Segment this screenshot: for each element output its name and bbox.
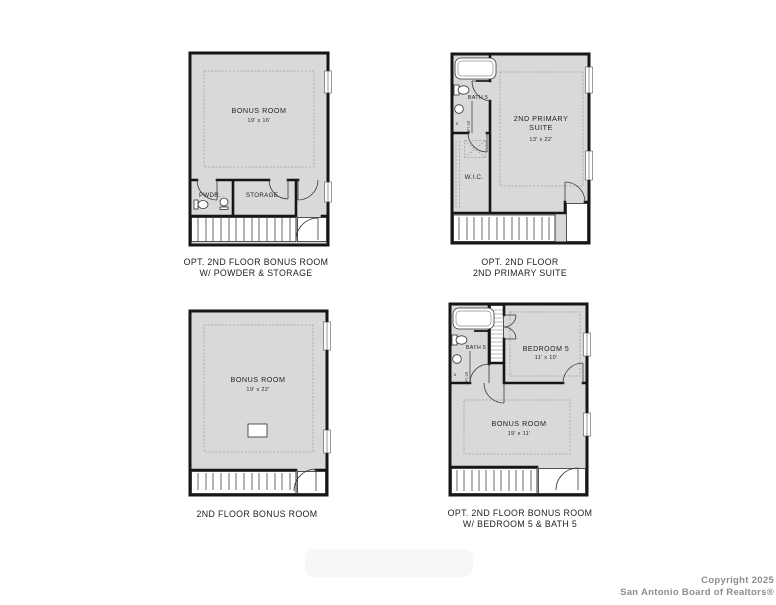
bonus-room-dims: 19' x 11' <box>508 431 531 437</box>
floor-outline <box>190 311 327 495</box>
bath-label: BATH 5 <box>466 345 486 351</box>
bonus-room-label: BONUS ROOM <box>231 375 286 384</box>
toilet-tank-icon <box>194 200 198 209</box>
sink-icon <box>453 355 462 364</box>
entry-landing <box>298 218 327 242</box>
floorplan-sheet: BONUS ROOM 19' x 16' PWDR. STORAGE OPT. … <box>0 0 776 600</box>
wic-label: W.I.C. <box>465 174 484 181</box>
suite-label-line2: SUITE <box>529 123 553 132</box>
sink-icon <box>220 198 228 206</box>
toilet-icon <box>458 86 469 94</box>
plan-caption-line1: OPT. 2ND FLOOR <box>481 257 558 267</box>
bonus-room-dims: 19' x 16' <box>247 118 270 124</box>
opt-door-label: OPT. DR <box>465 371 469 384</box>
plan-caption-line1: 2ND FLOOR BONUS ROOM <box>197 509 318 519</box>
copyright-line2: San Antonio Board of Realtors® <box>620 587 774 599</box>
sink-pedestal-icon <box>220 207 228 210</box>
powder-label: PWDR. <box>199 192 221 199</box>
plan-caption-line1: OPT. 2ND FLOOR BONUS ROOM <box>448 508 593 518</box>
plan-caption-line1: OPT. 2ND FLOOR BONUS ROOM <box>184 257 329 267</box>
storage-label: STORAGE <box>246 192 278 199</box>
copyright-watermark: Copyright 2025 San Antonio Board of Real… <box>620 575 776 598</box>
plan-opt-2nd-primary-suite: 2ND PRIMARY SUITE 13' x 22' BATH 5 W.I.C… <box>452 54 593 278</box>
bath-label: BATH 5 <box>468 95 488 101</box>
plan-caption-line2: W/ BEDROOM 5 & BATH 5 <box>463 519 577 529</box>
copyright-line1: Copyright 2025 <box>620 575 774 587</box>
bonus-room-dims: 19' x 22' <box>246 387 269 393</box>
plan-opt-bonus-powder-storage: BONUS ROOM 19' x 16' PWDR. STORAGE OPT. … <box>184 53 332 278</box>
suite-dims: 13' x 22' <box>529 137 552 143</box>
opt-door-label: OPT. DR <box>467 120 471 133</box>
toilet-icon <box>456 336 467 344</box>
attic-access <box>248 424 267 437</box>
bedroom-dims: 11' x 10' <box>535 355 558 361</box>
sink-icon <box>455 105 464 114</box>
entry-landing <box>539 469 586 494</box>
plan-opt-bonus-bedroom5-bath5: BEDROOM 5 11' x 10' BONUS ROOM 19' x 11'… <box>448 304 593 529</box>
toilet-icon <box>198 201 208 209</box>
faint-watermark-badge <box>305 549 473 577</box>
plan-caption-line2: 2ND PRIMARY SUITE <box>473 268 567 278</box>
bonus-room-label: BONUS ROOM <box>492 419 547 428</box>
plan-caption-line2: W/ POWDER & STORAGE <box>199 268 312 278</box>
entry-landing <box>567 204 588 242</box>
bonus-room-label: BONUS ROOM <box>232 106 287 115</box>
bedroom-label: BEDROOM 5 <box>523 346 570 353</box>
suite-label-line1: 2ND PRIMARY <box>514 114 569 123</box>
plan-2nd-floor-bonus-room: BONUS ROOM 19' x 22' 2ND FLOOR BONUS ROO… <box>190 311 331 519</box>
